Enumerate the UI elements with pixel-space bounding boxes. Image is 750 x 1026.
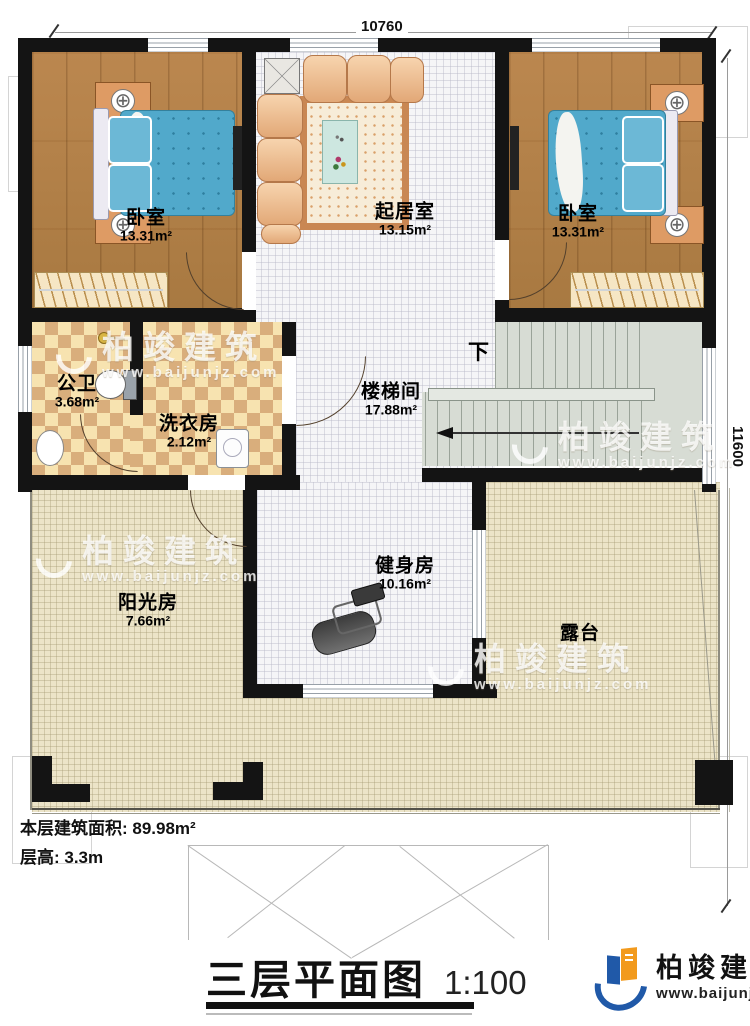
room-label-bedroom-left: 卧室 13.31m² <box>120 209 172 244</box>
wall-stair-bottom <box>422 468 716 482</box>
sofa-seat <box>257 182 303 226</box>
wardrobe <box>570 272 704 308</box>
lamp-icon: ⊕ <box>665 213 689 237</box>
stair-down-label: 下 <box>468 343 490 363</box>
room-label-living: 起居室 13.15m² <box>375 203 435 238</box>
tv-panel <box>233 126 242 190</box>
floor-height-text: 层高: 3.3m <box>20 843 196 872</box>
gym-floor <box>257 482 472 684</box>
door-gap-bedroom-left <box>242 252 256 310</box>
brand-logo-icon <box>594 946 648 1002</box>
laundry-floor <box>143 322 282 475</box>
washing-machine-drum <box>223 438 242 457</box>
wall-laundry-right-lower <box>282 424 296 476</box>
room-name: 起居室 <box>375 203 435 223</box>
room-label-bathroom: 公卫 3.68m² <box>55 375 99 410</box>
sofa-armrest <box>261 224 301 244</box>
window-left-bathroom <box>18 346 32 412</box>
staircase-lower-flight <box>422 392 702 466</box>
wall-laundry-right-upper <box>282 322 296 356</box>
stair-handrail <box>428 388 655 401</box>
wall-bathroom-divider <box>130 322 143 415</box>
room-name: 楼梯间 <box>361 383 421 403</box>
right-dimension-value: 11600 <box>729 421 746 472</box>
room-name: 露台 <box>560 624 600 644</box>
roof-hip-line <box>399 846 514 939</box>
tv-panel <box>510 126 519 190</box>
sofa-seat <box>347 55 391 103</box>
dimension-tick <box>49 24 60 38</box>
floor-plan-canvas: 10760 11600 <box>0 0 750 1026</box>
bed-pillow <box>622 116 664 164</box>
door-gap-bedroom-right <box>495 240 509 300</box>
room-area: 2.12m² <box>159 435 219 450</box>
sofa-seat <box>257 138 303 182</box>
room-label-laundry: 洗衣房 2.12m² <box>159 415 219 450</box>
coffee-table <box>322 120 358 184</box>
window-top-bedroom-left <box>148 38 208 52</box>
room-name: 卧室 <box>552 205 604 225</box>
room-area: 13.31m² <box>120 229 172 244</box>
window-gym-right <box>472 530 486 638</box>
room-area: 13.31m² <box>552 225 604 240</box>
bed-pillow <box>622 164 664 212</box>
sofa-seat <box>390 57 424 103</box>
stair-treads <box>425 392 653 466</box>
roof-hip-line <box>352 844 548 958</box>
door-gap-sunroom <box>188 475 245 490</box>
wall-gym-bottom-left <box>243 684 303 698</box>
floor-area-text: 本层建筑面积: 89.98m² <box>20 814 196 843</box>
wall-gym-right-upper <box>472 482 486 530</box>
dimension-tick <box>721 899 732 913</box>
stair-treads <box>495 320 641 392</box>
terrace-edge-bottom <box>32 808 720 810</box>
bed-headboard <box>93 108 109 220</box>
terrace-column-bottom-left-h <box>32 784 90 802</box>
wardrobe <box>34 272 168 308</box>
stair-arrow-line <box>453 432 639 434</box>
stair-down-text: 下 <box>468 343 490 363</box>
room-area: 10.16m² <box>375 577 435 592</box>
room-name: 洗衣房 <box>159 415 219 435</box>
terrace-column-bottom-right <box>695 760 733 805</box>
room-label-sunroom: 阳光房 7.66m² <box>118 594 178 629</box>
sofa-seat <box>257 94 303 138</box>
plan-title: 三层平面图 <box>206 946 426 1006</box>
roof-outline-right <box>548 845 549 940</box>
room-name: 健身房 <box>375 557 435 577</box>
hallway-floor-opening <box>296 468 422 482</box>
room-label-terrace: 露台 <box>560 624 600 644</box>
wall-bedroom-right-bottom <box>495 308 716 322</box>
room-label-gym: 健身房 10.16m² <box>375 557 435 592</box>
room-label-stairwell: 楼梯间 17.88m² <box>361 383 421 418</box>
brand-logo-block: 柏竣建筑 www.baijunjz.com <box>594 946 750 1002</box>
room-name: 卧室 <box>120 209 172 229</box>
staircase-upper-flight <box>495 320 702 392</box>
wall-gym-bottom-right <box>433 684 497 698</box>
terrace-column-bottom-mid-h <box>213 782 263 800</box>
brand-name: 柏竣建筑 <box>656 946 750 985</box>
window-top-living <box>290 38 378 52</box>
roof-outline-top <box>188 845 548 846</box>
room-area: 7.66m² <box>118 614 178 629</box>
bed-pillow <box>108 164 152 212</box>
title-underline <box>206 1002 474 1009</box>
wall-bedroom-left-bottom <box>32 308 256 322</box>
toilet-bowl <box>95 370 126 399</box>
brand-url: www.baijunjz.com <box>656 985 750 1002</box>
room-area: 3.68m² <box>55 395 99 410</box>
floor-info: 本层建筑面积: 89.98m² 层高: 3.3m <box>20 814 196 872</box>
stair-direction-arrow <box>436 427 453 439</box>
bed-pillow <box>108 116 152 164</box>
wall-bathroom-bottom <box>18 475 300 490</box>
wall-left <box>18 38 32 492</box>
plan-scale: 1:100 <box>444 964 527 1002</box>
room-area: 13.15m² <box>375 223 435 238</box>
wall-gym-right-lower <box>472 638 486 698</box>
room-label-bedroom-right: 卧室 13.31m² <box>552 205 604 240</box>
window-gym-bottom <box>303 684 433 698</box>
room-name: 公卫 <box>55 375 99 395</box>
top-dimension-value: 10760 <box>356 18 408 35</box>
sink <box>36 430 64 466</box>
window-top-bedroom-right <box>532 38 660 52</box>
roof-hip-line <box>187 845 351 959</box>
room-area: 17.88m² <box>361 403 421 418</box>
title-underline-thin <box>206 1013 472 1015</box>
sofa-seat <box>303 55 347 103</box>
corner-table <box>264 58 300 94</box>
title-block: 三层平面图 1:100 <box>206 946 527 1006</box>
door-gap-laundry <box>282 356 296 424</box>
window-right-stairwell <box>702 348 716 484</box>
room-name: 阳光房 <box>118 594 178 614</box>
roof-hip-line <box>227 845 345 938</box>
